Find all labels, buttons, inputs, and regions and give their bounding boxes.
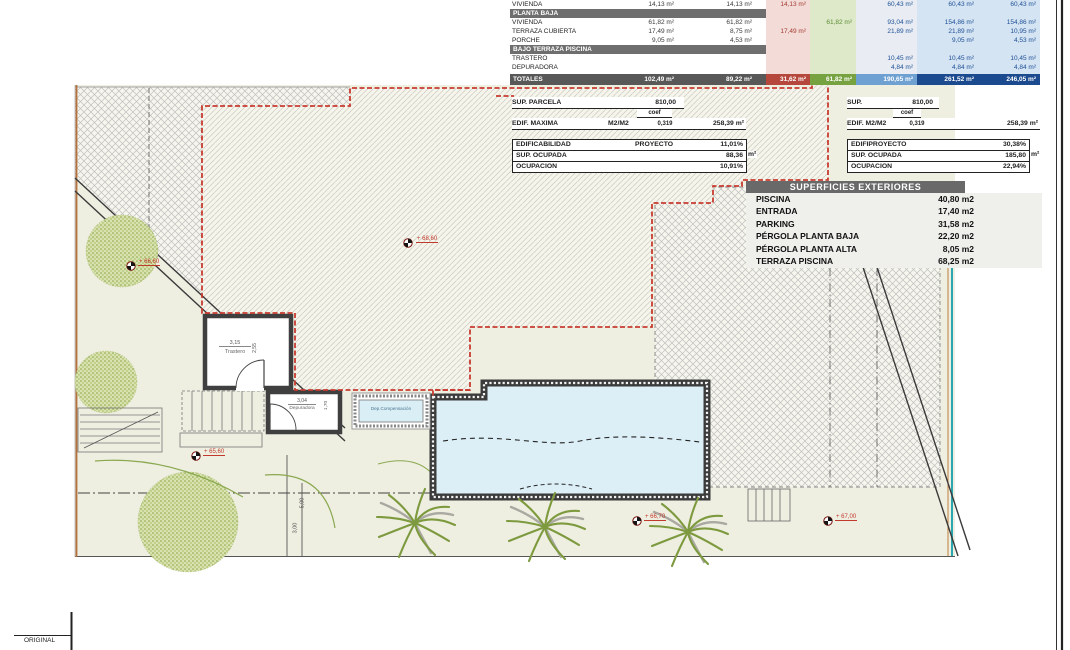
row-value: 22,20 m2	[938, 230, 974, 242]
cell-value: 61,82 m²	[678, 18, 756, 27]
edif-unit: M2/M2	[608, 119, 629, 129]
row-label: DEPURADORA	[512, 63, 632, 72]
totals-value: 89,22 m²	[678, 74, 756, 85]
row-label: EDIFICABILIDAD	[516, 140, 571, 150]
cell-value: 93,04 m²	[858, 18, 917, 27]
totals-label: TOTALES	[513, 76, 543, 83]
sup-ocupada-row: SUP. OCUPADA 88,36	[513, 151, 746, 162]
totals-value: 190,65 m²	[856, 74, 917, 85]
row-value: 185,80	[1005, 151, 1026, 161]
superficies-exteriores-header: SUPERFICIES EXTERIORES	[746, 181, 965, 193]
sup-parcela-label: SUP. PARCELA	[512, 98, 561, 108]
level-label-3: + 66,70	[644, 514, 666, 521]
row-label: PARKING	[756, 218, 795, 230]
sup-row-right: SUP. 810,00	[847, 97, 939, 109]
depuradora-label: Depuradora	[282, 406, 322, 411]
ext-row-pergola-baja: PÉRGOLA PLANTA BAJA 22,20 m2	[746, 230, 1042, 242]
edif-maxima-value: 258,39 m²	[713, 119, 746, 129]
row-label: PÉRGOLA PLANTA BAJA	[756, 230, 859, 242]
coef-label-right: coef	[893, 109, 921, 118]
sup-parcela-value: 810,00	[655, 98, 684, 108]
cell-value: 61,82 m²	[812, 18, 856, 27]
sup-value: 810,00	[912, 98, 939, 108]
row-label: EDIFIPROYECTO	[851, 140, 906, 150]
dep-compensacion-tank	[352, 393, 430, 429]
row-value: 40,80 m2	[938, 193, 974, 205]
cell-value: 154,86 m²	[980, 18, 1040, 27]
level-label-1: + 68,60	[416, 236, 438, 243]
totals-value: 261,52 m²	[917, 74, 978, 85]
table-row: VIVIENDA 14,13 m² 14,13 m² 14,13 m² 60,4…	[510, 0, 1040, 9]
edifiproyecto-row: EDIFIPROYECTO 30,38%	[848, 140, 1029, 151]
cell-value: 4,53 m²	[678, 36, 756, 45]
cell-value: 10,45 m²	[919, 54, 978, 63]
sup-ocupada-row-right: SUP. OCUPADA 185,80	[848, 151, 1029, 162]
table-row: DEPURADORA 4,84 m² 4,84 m² 4,84 m²	[510, 63, 1040, 72]
ocupacion-row-right: OCUPACION 22,94%	[848, 162, 1029, 172]
edificabilidad-box-left: EDIFICABILIDAD PROYECTO 11,01% SUP. OCUP…	[512, 139, 747, 173]
row-value: 22,94%	[1003, 162, 1026, 172]
section-header-bajo-terraza: BAJO TERRAZA PISCINA	[510, 45, 766, 54]
row-label: OCUPACION	[851, 162, 892, 172]
level-marker-2	[192, 452, 200, 460]
edif-m2m2-label: EDIF. M2/M2	[847, 119, 886, 129]
superficies-exteriores-table: PISCINA 40,80 m2 ENTRADA 17,40 m2 PARKIN…	[746, 193, 1042, 268]
dep-compensacion-label: Dep.Compensación	[354, 406, 428, 411]
m2-suffix-right: m²	[1030, 151, 1040, 158]
cell-value: 9,05 m²	[919, 36, 978, 45]
ext-row-terraza-piscina: TERRAZA PISCINA 68,25 m2	[746, 255, 1042, 267]
totals-row: TOTALES 102,49 m² 89,22 m² 31,62 m² 61,8…	[510, 74, 1040, 85]
row-label: ENTRADA	[756, 205, 798, 217]
cell-value: 60,43 m²	[980, 0, 1040, 9]
edif-m2m2-value: 258,39 m²	[1007, 119, 1040, 129]
sup-parcela-row: SUP. PARCELA 810,00	[512, 97, 684, 109]
cell-value: 4,53 m²	[980, 36, 1040, 45]
level-label-4: + 67,00	[835, 514, 857, 521]
table-row: TERRAZA CUBIERTA 17,49 m² 8,75 m² 17,49 …	[510, 27, 1040, 36]
row-value: 30,38%	[1003, 140, 1026, 150]
original-stamp: ORIGINAL	[24, 637, 55, 644]
dimension-5m-label: 5,00	[299, 498, 305, 509]
cell-value: 10,45 m²	[858, 54, 917, 63]
level-label-2: + 65,60	[203, 449, 225, 456]
swimming-pool	[433, 383, 707, 497]
trastero-height-dim: 2,55	[252, 343, 258, 353]
m2-suffix-left: m²	[747, 151, 757, 158]
cell-value: 10,45 m²	[980, 54, 1040, 63]
cell-value: 60,43 m²	[858, 0, 917, 9]
level-marker-5	[127, 262, 135, 270]
cell-value: 17,49 m²	[600, 27, 678, 36]
cell-value: 4,84 m²	[858, 63, 917, 72]
row-label: TERRAZA PISCINA	[756, 255, 833, 267]
level-marker-4	[824, 517, 832, 525]
row-label: PISCINA	[756, 193, 790, 205]
row-label: SUP. OCUPADA	[516, 151, 567, 161]
cell-value: 17,49 m²	[768, 27, 810, 36]
cell-value: 60,43 m²	[919, 0, 978, 9]
cell-value: 154,86 m²	[919, 18, 978, 27]
level-label-5: + 66,60	[138, 259, 160, 266]
cell-value: 14,13 m²	[678, 0, 756, 9]
row-value: 31,58 m2	[938, 218, 974, 230]
trastero-label: Trastero	[219, 349, 251, 355]
cell-value	[812, 0, 856, 9]
drawing-sheet: 3,15 Trastero 2,55 3,04 Depuradora 1,70 …	[0, 0, 1070, 650]
edif-maxima-row: EDIF. MAXIMA M2/M2 0,319 258,39 m²	[512, 118, 746, 130]
row-label: SUP. OCUPADA	[851, 151, 902, 161]
row-label: TRASTERO	[512, 54, 632, 63]
depuradora-width-dim: 3,04	[288, 398, 316, 405]
edificabilidad-box-right: EDIFIPROYECTO 30,38% SUP. OCUPADA 185,80…	[847, 139, 1030, 173]
areas-summary-table: VIVIENDA 14,13 m² 14,13 m² 14,13 m² 60,4…	[510, 0, 1040, 85]
table-row: VIVIENDA 61,82 m² 61,82 m² 61,82 m² 93,0…	[510, 18, 1040, 27]
row-value: 10,91%	[720, 162, 743, 172]
ocupacion-row: OCUPACION 10,91%	[513, 162, 746, 172]
cell-value: 10,95 m²	[980, 27, 1040, 36]
totals-label-cell: TOTALES 102,49 m² 89,22 m²	[510, 74, 766, 85]
totals-value: 31,62 m²	[766, 74, 810, 85]
table-row: PORCHE 9,05 m² 4,53 m² 9,05 m² 4,53 m²	[510, 36, 1040, 45]
depuradora-height-dim: 1,70	[324, 401, 329, 410]
tree-1	[86, 215, 158, 287]
cell-value: 21,89 m²	[858, 27, 917, 36]
edif-m2m2-row: EDIF. M2/M2 0,319 258,39 m²	[847, 118, 1040, 130]
row-value: 8,05 m2	[943, 243, 974, 255]
row-label: PÉRGOLA PLANTA ALTA	[756, 243, 857, 255]
coef-label-left: coef	[637, 109, 672, 118]
cell-value: 14,13 m²	[600, 0, 678, 9]
cell-value: 61,82 m²	[600, 18, 678, 27]
cell-value: 21,89 m²	[919, 27, 978, 36]
tree-2	[75, 351, 137, 413]
sup-label: SUP.	[847, 98, 862, 108]
section-header-planta-baja: PLANTA BAJA	[510, 9, 766, 18]
row-value: 11,01%	[720, 140, 743, 150]
totals-value: 102,49 m²	[600, 74, 678, 85]
cell-value: 8,75 m²	[678, 27, 756, 36]
row-mid: PROYECTO	[635, 140, 673, 150]
ext-row-pergola-alta: PÉRGOLA PLANTA ALTA 8,05 m2	[746, 243, 1042, 255]
cell-value: 4,84 m²	[980, 63, 1040, 72]
coef-value-left: 0,319	[644, 119, 686, 129]
edificabilidad-row: EDIFICABILIDAD PROYECTO 11,01%	[513, 140, 746, 151]
cell-value: 4,84 m²	[919, 63, 978, 72]
edif-maxima-label: EDIF. MAXIMA	[512, 119, 558, 129]
table-row: TRASTERO 10,45 m² 10,45 m² 10,45 m²	[510, 54, 1040, 63]
totals-value: 61,82 m²	[810, 74, 856, 85]
cell-value: 9,05 m²	[600, 36, 678, 45]
dimension-3m-label: 3,00	[292, 523, 298, 534]
coef-value-right: 0,319	[899, 119, 935, 129]
cell-value: 14,13 m²	[768, 0, 810, 9]
row-value: 68,25 m2	[938, 255, 974, 267]
level-marker-1	[404, 239, 412, 247]
row-value: 88,36	[726, 151, 743, 161]
level-marker-3	[633, 517, 641, 525]
door-opening	[236, 383, 264, 391]
totals-value: 246,05 m²	[978, 74, 1040, 85]
ext-row-piscina: PISCINA 40,80 m2	[746, 193, 1042, 205]
trastero-width-dim: 3,15	[219, 340, 251, 347]
row-value: 17,40 m2	[938, 205, 974, 217]
ext-row-parking: PARKING 31,58 m2	[746, 218, 1042, 230]
row-label: OCUPACION	[516, 162, 557, 172]
ext-row-entrada: ENTRADA 17,40 m2	[746, 205, 1042, 217]
